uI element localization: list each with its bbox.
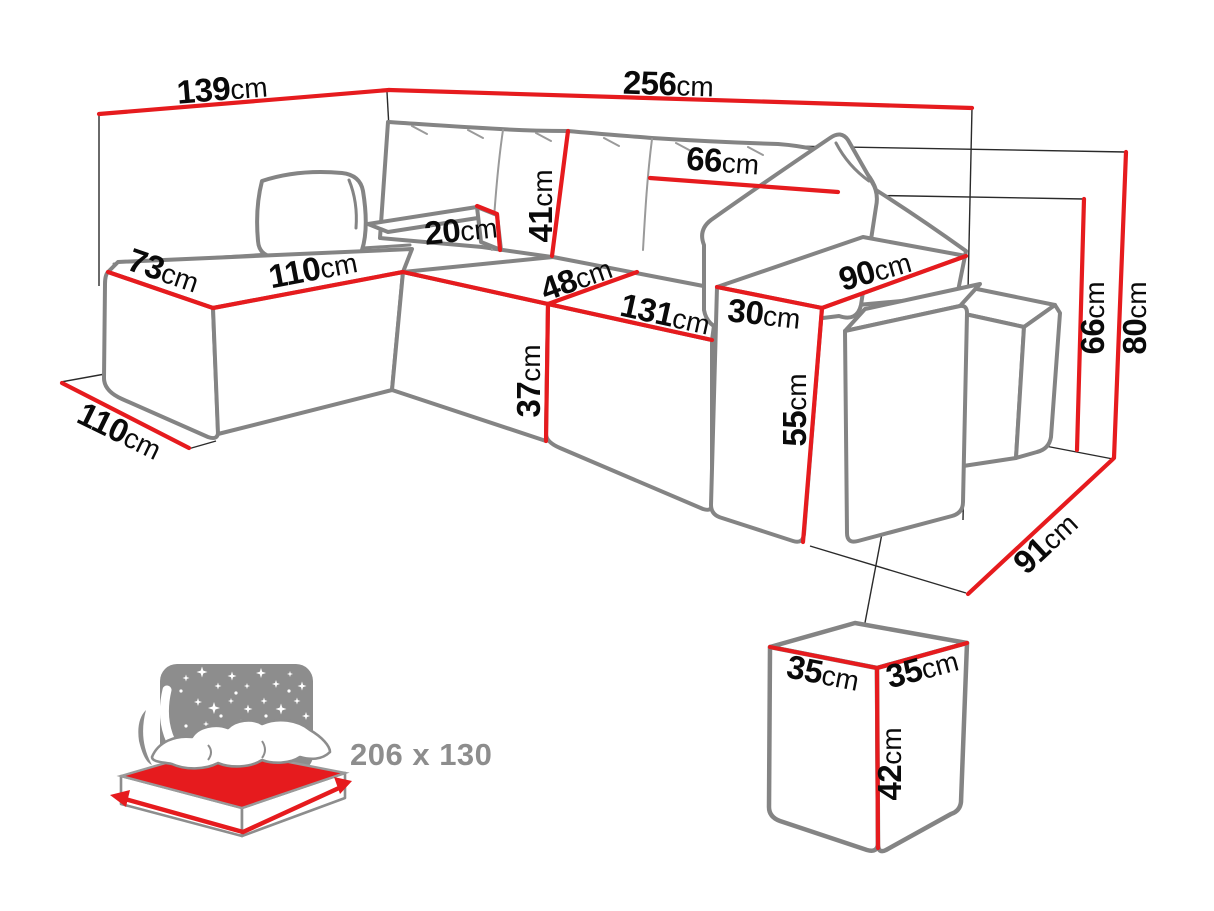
dim-label-total-height: 80cm [1116, 281, 1153, 354]
depth-ext-right [188, 441, 216, 449]
dim-label-backrest-height: 66cm [1074, 281, 1111, 354]
dim-line-91 [968, 459, 1113, 594]
sleeping-function-icon: 206 x 130 [110, 664, 492, 836]
dim-line-37 [546, 304, 548, 441]
dim-label-armrest-height: 55cm [776, 373, 813, 446]
depth-ext-left [61, 374, 105, 382]
pouf-dimension-cube: 35cm 35cm 42cm [769, 623, 967, 851]
pouf-1-front [845, 306, 967, 542]
dim-label-side-depth: 91cm [1006, 504, 1085, 581]
dim-label-back-cushion-height: 41cm [522, 169, 559, 242]
pouf-2-side [1016, 305, 1060, 458]
dim-label-back-width-right: 256cm [622, 64, 714, 104]
sofa-outline [104, 122, 1060, 542]
diagram-canvas: 139cm 256cm 20cm 73cm 110cm 41cm 66cm 48… [0, 0, 1214, 911]
dim-label-pouf-height: 42cm [871, 727, 908, 800]
moon-tail-shape [138, 710, 152, 765]
dim-label-back-width-left: 139cm [175, 66, 269, 110]
bed-size-label: 206 x 130 [350, 737, 492, 772]
dim-label-seat-height: 37cm [510, 344, 547, 417]
side-depth-ext-left [810, 546, 966, 593]
fold-out-bed-icon [110, 720, 352, 836]
furniture-dimension-diagram: 139cm 256cm 20cm 73cm 110cm 41cm 66cm 48… [0, 0, 1214, 911]
